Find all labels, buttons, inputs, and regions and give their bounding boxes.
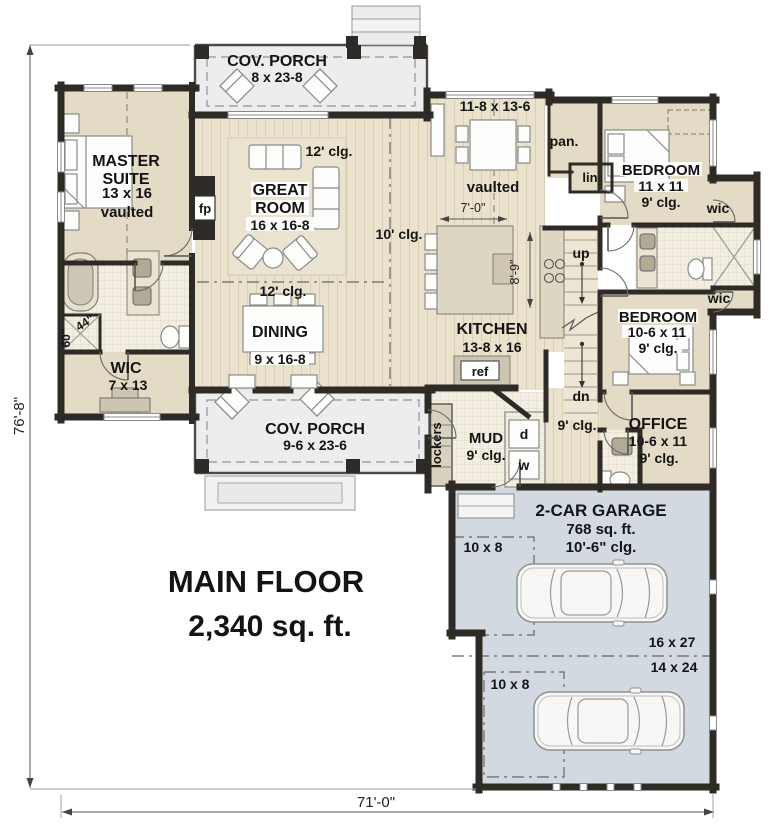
top-steps — [346, 6, 426, 48]
window — [710, 580, 717, 594]
kitchen-name: KITCHEN — [456, 321, 527, 338]
overall-depth-dim: 76'-8" — [11, 397, 28, 435]
porch-post — [346, 459, 360, 473]
dining-size: 9 x 16-8 — [254, 351, 306, 367]
linen-label: lin — [582, 170, 597, 185]
window — [58, 192, 65, 222]
toilet — [688, 258, 712, 280]
window — [710, 330, 717, 374]
bed2-size: 10-6 x 11 — [628, 324, 687, 340]
plan-area: 2,340 sq. ft. — [188, 610, 351, 643]
garage-bay1: 16 x 27 — [649, 634, 696, 650]
great-size: 16 x 16-8 — [250, 217, 309, 233]
wic2-label: wic — [707, 290, 731, 306]
master-note: vaulted — [101, 204, 154, 221]
master-name-1: MASTER — [92, 153, 160, 170]
island-stool — [425, 293, 437, 309]
overall-width-dim: 71'-0" — [357, 794, 395, 811]
island-width-dim: 7'-0" — [461, 201, 486, 215]
nook-table — [470, 120, 516, 170]
washer-label: w — [518, 457, 530, 473]
window — [710, 120, 717, 166]
nightstand — [613, 372, 628, 385]
wic-master-name: WIC — [110, 360, 142, 377]
floor-plan-svg: COV. PORCH 8 x 23-8 MASTER SUITE 13 x 16… — [0, 0, 768, 829]
nook-chair — [456, 147, 468, 163]
stairs-down-label: dn — [572, 388, 589, 404]
wic-master-size: 7 x 13 — [109, 377, 148, 393]
car-1 — [517, 560, 667, 626]
garage-wall-tick — [634, 784, 641, 791]
great-name-2: ROOM — [255, 200, 305, 217]
garage-area: 768 sq. ft. — [566, 521, 635, 538]
bed1-size: 11 x 11 — [638, 178, 683, 194]
round-table — [263, 248, 283, 268]
office-clg: 9' clg. — [639, 450, 678, 466]
great-name-1: GREAT — [253, 182, 308, 199]
garage-landing — [458, 494, 514, 518]
island-stool — [425, 274, 437, 290]
nook-size: 11-8 x 13-6 — [460, 98, 531, 114]
mud-name: MUD — [469, 430, 503, 447]
window — [58, 142, 65, 172]
porch-top-name: COV. PORCH — [227, 53, 327, 70]
dryer-label: d — [520, 426, 529, 442]
nook-note: vaulted — [467, 179, 520, 196]
wic1-label: wic — [706, 200, 730, 216]
ref-label: ref — [472, 364, 489, 379]
sink — [640, 256, 655, 271]
nightstand — [62, 114, 79, 133]
window — [104, 414, 160, 421]
porch-post — [195, 459, 209, 473]
dim-arrow — [27, 778, 34, 788]
sofa — [249, 145, 301, 169]
garage-clg: 10'-6" clg. — [566, 539, 637, 556]
dim-arrow — [62, 809, 72, 816]
garage-bay2: 14 x 24 — [651, 659, 698, 675]
door — [608, 225, 634, 251]
porch-post — [347, 45, 361, 59]
stairs-up-label: up — [572, 245, 589, 261]
hall-bottom-clg: 9' clg. — [557, 417, 596, 433]
dining-name: DINING — [252, 324, 308, 341]
garage-wall-tick — [580, 784, 587, 791]
nook-chair — [518, 147, 530, 163]
porch-top-size: 8 x 23-8 — [251, 69, 303, 85]
nook-chair — [456, 126, 468, 142]
window — [84, 85, 112, 92]
bed1-name: BEDROOM — [622, 162, 700, 179]
mud-clg: 9' clg. — [466, 447, 505, 463]
garage-stor2: 10 x 8 — [491, 676, 530, 692]
fireplace-label: fp — [199, 201, 211, 216]
garage-wall-tick — [607, 784, 614, 791]
master-size: 13 x 16 — [102, 185, 152, 202]
patio-door-leaf — [291, 375, 317, 388]
window — [612, 97, 658, 104]
nightstand — [680, 372, 695, 385]
porch-post — [413, 45, 427, 59]
dim-arrow — [27, 45, 34, 55]
island-depth-dim: 8'-9" — [508, 260, 522, 285]
window — [710, 428, 717, 468]
sink — [640, 234, 655, 249]
bed2-clg: 9' clg. — [638, 340, 677, 356]
shower-depth-dim: 60" — [59, 328, 73, 347]
island-stool — [425, 254, 437, 270]
kitchen-size: 13-8 x 16 — [462, 339, 521, 355]
lockers-label: lockers — [429, 422, 444, 468]
window — [134, 85, 162, 92]
hall-top-clg: 10' clg. — [376, 226, 423, 242]
porch-bottom-size: 9-6 x 23-6 — [283, 437, 347, 453]
garage-stor1: 10 x 8 — [464, 539, 503, 555]
dim-arrow — [704, 809, 714, 816]
bottom-steps — [205, 476, 355, 510]
garage-name: 2-CAR GARAGE — [535, 501, 666, 520]
office-size: 10-6 x 11 — [629, 433, 688, 449]
floor-plan-page: COV. PORCH 8 x 23-8 MASTER SUITE 13 x 16… — [0, 0, 768, 829]
great-clg: 12' clg. — [306, 143, 353, 159]
toilet — [161, 326, 190, 348]
porch-post — [195, 45, 209, 59]
car-2 — [534, 688, 684, 754]
dining-clg: 12' clg. — [260, 283, 307, 299]
pantry-label: pan. — [550, 133, 579, 149]
island-stool — [425, 234, 437, 250]
garage-wall-tick — [553, 784, 560, 791]
loveseat — [313, 167, 339, 229]
plan-title: MAIN FLOOR — [168, 564, 364, 599]
bed1-clg: 9' clg. — [641, 194, 680, 210]
patio-door-leaf — [229, 375, 255, 388]
window — [228, 112, 328, 119]
office-name: OFFICE — [629, 416, 688, 433]
porch-bottom-name: COV. PORCH — [265, 421, 365, 438]
nook-chair — [518, 126, 530, 142]
window — [754, 240, 761, 274]
window — [710, 716, 717, 730]
